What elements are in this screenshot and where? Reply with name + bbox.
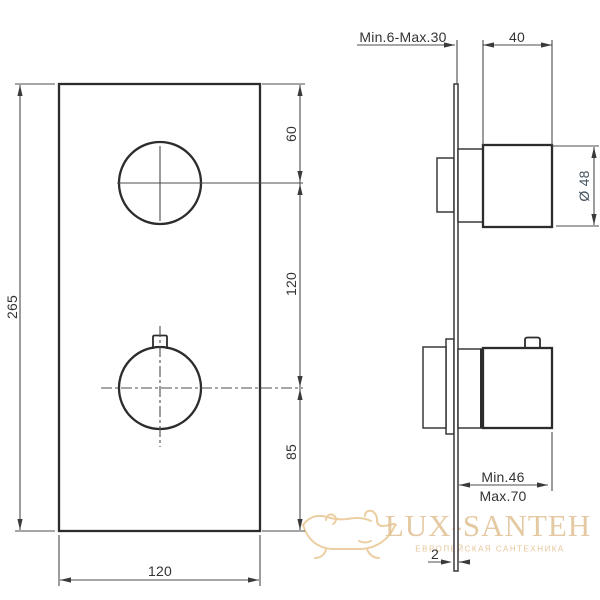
dim-handle-spacing-label: 120 <box>283 272 299 296</box>
dim-projection-max-label: Max.70 <box>479 488 526 504</box>
lower-handle-knob-side <box>483 348 552 428</box>
dim-handle-length-label: 40 <box>509 29 525 45</box>
lower-mounting-flange <box>446 339 454 434</box>
upper-roughin-body <box>437 158 454 212</box>
dim-plate-height-label: 265 <box>4 295 20 319</box>
upper-handle-adapter <box>458 149 483 222</box>
dim-plate-thickness-label: 2 <box>431 546 439 562</box>
technical-drawing-canvas: LUX-SANTEH ЕВРОПЕЙСКАЯ САНТЕХНИКА <box>0 0 600 600</box>
lower-handle-adapter <box>458 349 482 428</box>
upper-handle-knob-side <box>483 145 552 227</box>
dim-bottom-offset-label: 85 <box>283 444 299 460</box>
mixer-drawing <box>0 0 600 600</box>
lower-roughin-body <box>423 347 446 428</box>
front-view <box>59 84 303 531</box>
dim-top-offset-label: 60 <box>283 126 299 142</box>
dim-plate-width-label: 120 <box>148 563 172 579</box>
dim-handle-diameter-label: Ø 48 <box>576 170 592 201</box>
dim-projection-min-label: Min.46 <box>481 469 524 485</box>
side-view-dimensions <box>357 40 599 565</box>
dim-installation-depth-label: Min.6-Max.30 <box>359 29 446 45</box>
